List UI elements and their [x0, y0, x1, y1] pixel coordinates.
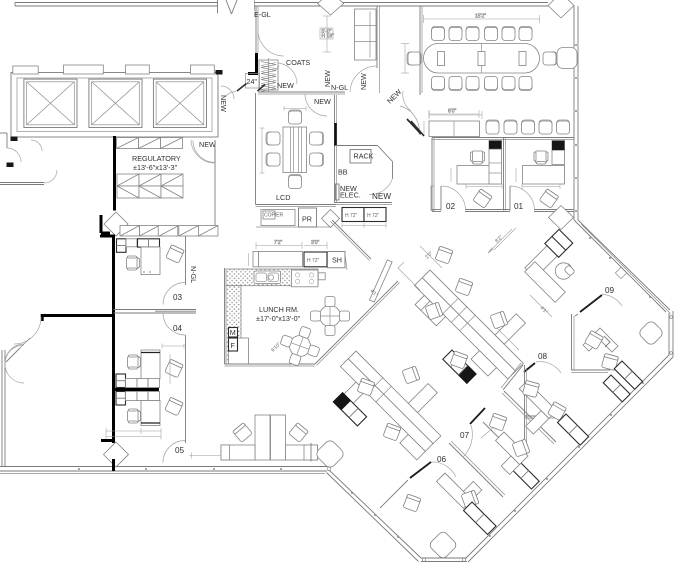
svg-text:PR: PR	[302, 215, 312, 224]
svg-text:NEW: NEW	[323, 70, 332, 87]
svg-text:04: 04	[173, 324, 183, 333]
svg-text:H 19": H 19"	[322, 34, 335, 40]
svg-text:09: 09	[605, 286, 615, 295]
svg-text:6'0": 6'0"	[448, 109, 457, 115]
svg-text:REGULATORY: REGULATORY	[132, 154, 181, 163]
svg-text:H 72": H 72"	[345, 213, 358, 219]
svg-text:RACK: RACK	[354, 152, 374, 161]
svg-text:NEW: NEW	[199, 140, 216, 149]
svg-text:06: 06	[437, 455, 447, 464]
svg-text:H 72": H 72"	[367, 213, 380, 219]
svg-text:COPIER: COPIER	[264, 213, 284, 219]
svg-text:15'2": 15'2"	[475, 14, 486, 20]
svg-text:BB: BB	[338, 168, 348, 177]
svg-text:24": 24"	[247, 77, 258, 86]
svg-text:LCD: LCD	[276, 193, 290, 202]
svg-text:COATS: COATS	[286, 58, 310, 67]
svg-text:03: 03	[173, 293, 183, 302]
svg-text:E-GL: E-GL	[254, 10, 271, 19]
svg-text:02: 02	[446, 202, 456, 211]
svg-text:M: M	[230, 328, 236, 337]
svg-text:NEW: NEW	[219, 95, 228, 112]
svg-text:F: F	[231, 341, 236, 350]
svg-text:01: 01	[514, 202, 524, 211]
svg-text:7'2": 7'2"	[274, 240, 283, 246]
svg-text:ELEC.: ELEC.	[340, 191, 361, 200]
svg-text:05: 05	[175, 446, 185, 455]
svg-text:NEW: NEW	[277, 81, 294, 90]
svg-text:NEW: NEW	[372, 192, 391, 201]
svg-text:3'0": 3'0"	[311, 240, 320, 246]
svg-text:±17'-0"x13'-0": ±17'-0"x13'-0"	[256, 314, 301, 323]
svg-text:N-GL: N-GL	[189, 266, 198, 283]
svg-text:LUNCH RM.: LUNCH RM.	[259, 305, 299, 314]
svg-text:NEW: NEW	[359, 73, 368, 90]
svg-text:08: 08	[538, 352, 548, 361]
svg-text:H 72": H 72"	[307, 258, 320, 264]
svg-text:NEW: NEW	[314, 97, 331, 106]
svg-text:N-GL: N-GL	[331, 83, 348, 92]
svg-text:±13'-6"x13'-3": ±13'-6"x13'-3"	[133, 163, 178, 172]
svg-text:SH: SH	[332, 256, 342, 265]
svg-text:07: 07	[460, 431, 470, 440]
